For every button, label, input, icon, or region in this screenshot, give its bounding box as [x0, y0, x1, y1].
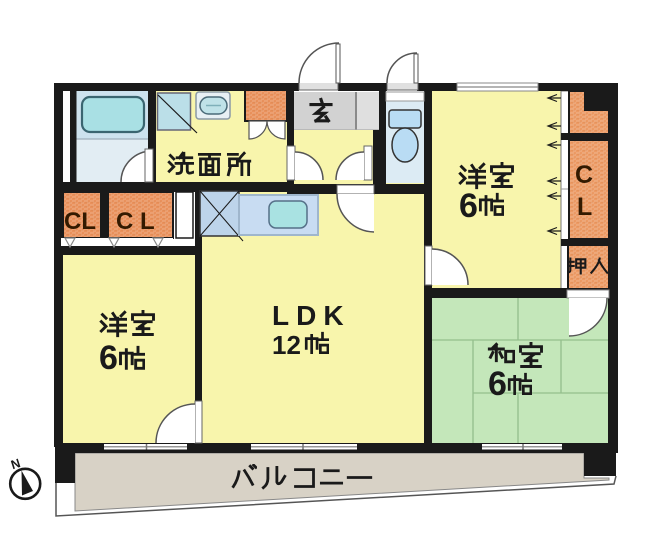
svg-text:LDK: LDK	[272, 300, 351, 331]
svg-text:L: L	[577, 193, 592, 221]
svg-text:6: 6	[488, 365, 507, 403]
svg-text:12: 12	[272, 330, 301, 360]
svg-text:CL: CL	[64, 208, 96, 235]
svg-text:6: 6	[99, 339, 118, 377]
svg-text:C L: C L	[116, 208, 155, 235]
svg-text:6: 6	[459, 187, 478, 225]
svg-text:C: C	[575, 161, 593, 189]
